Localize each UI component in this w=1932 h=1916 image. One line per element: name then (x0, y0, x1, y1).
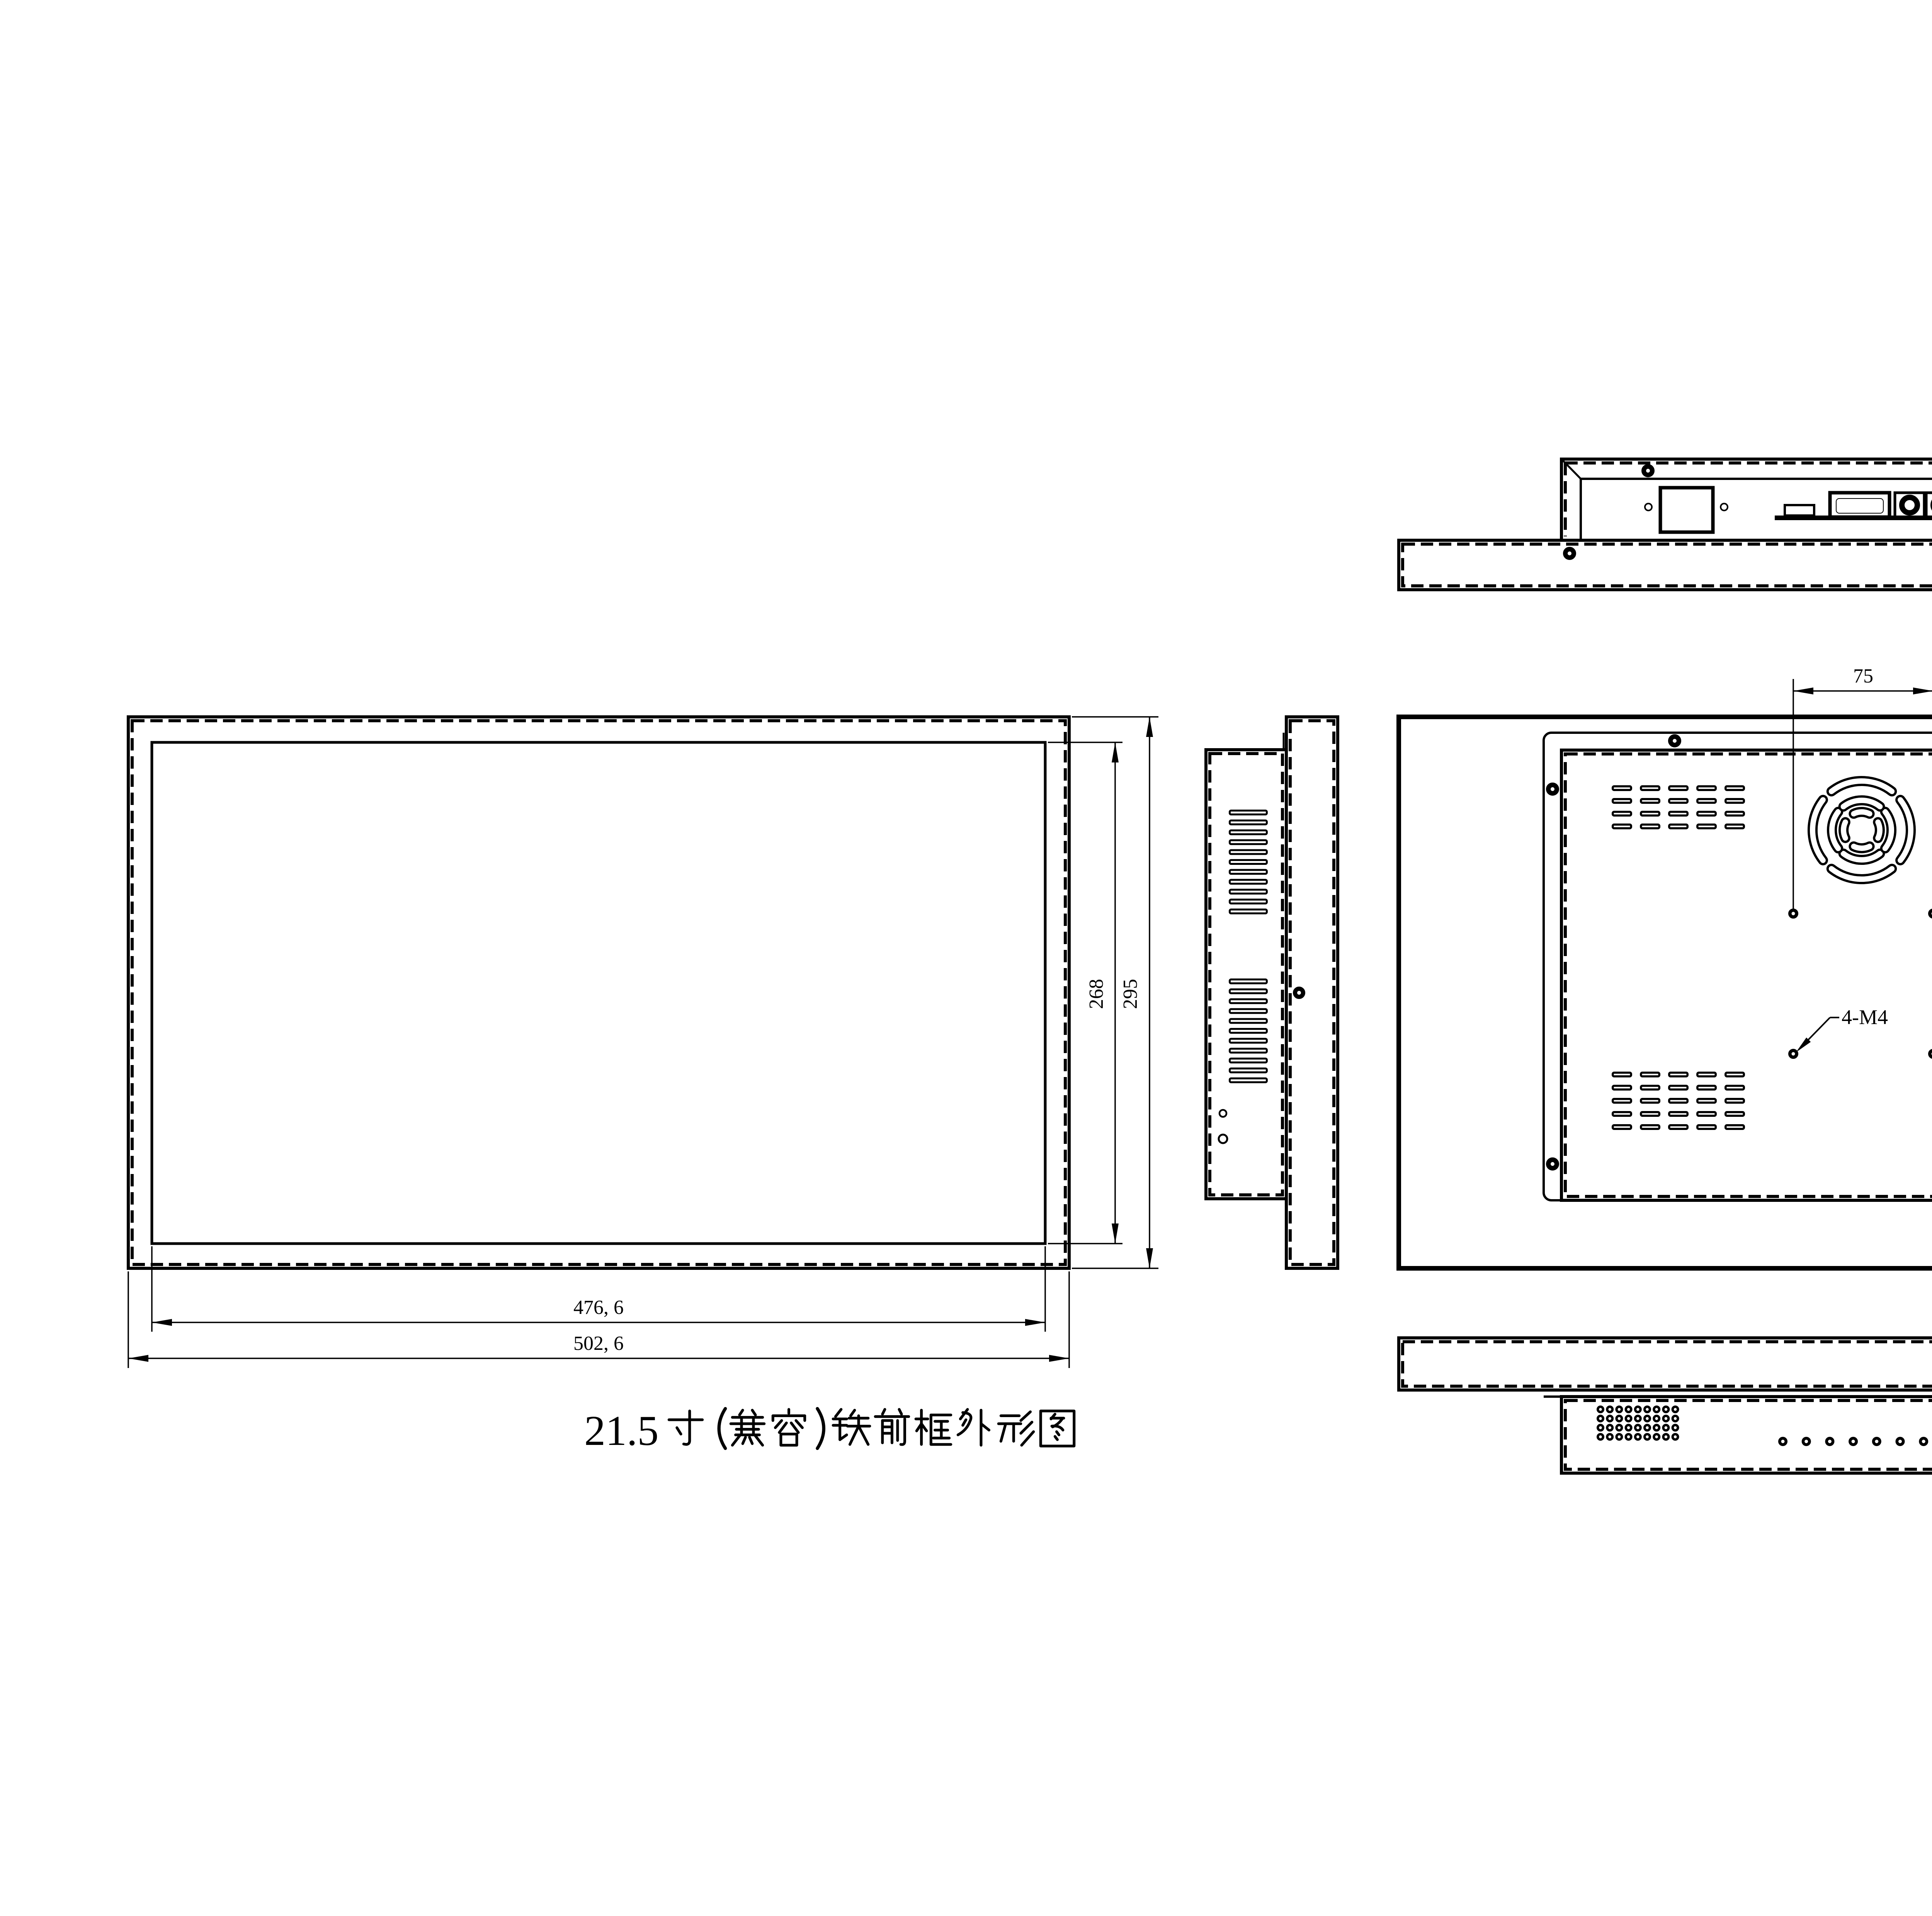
svg-text:21.5: 21.5 (584, 1407, 659, 1454)
svg-text:295: 295 (1119, 979, 1141, 1009)
svg-text:502, 6: 502, 6 (573, 1332, 624, 1354)
svg-text:75: 75 (1853, 665, 1873, 687)
svg-text:268: 268 (1085, 979, 1107, 1009)
svg-text:476, 6: 476, 6 (573, 1297, 624, 1319)
svg-text:4-M4: 4-M4 (1842, 1006, 1888, 1029)
